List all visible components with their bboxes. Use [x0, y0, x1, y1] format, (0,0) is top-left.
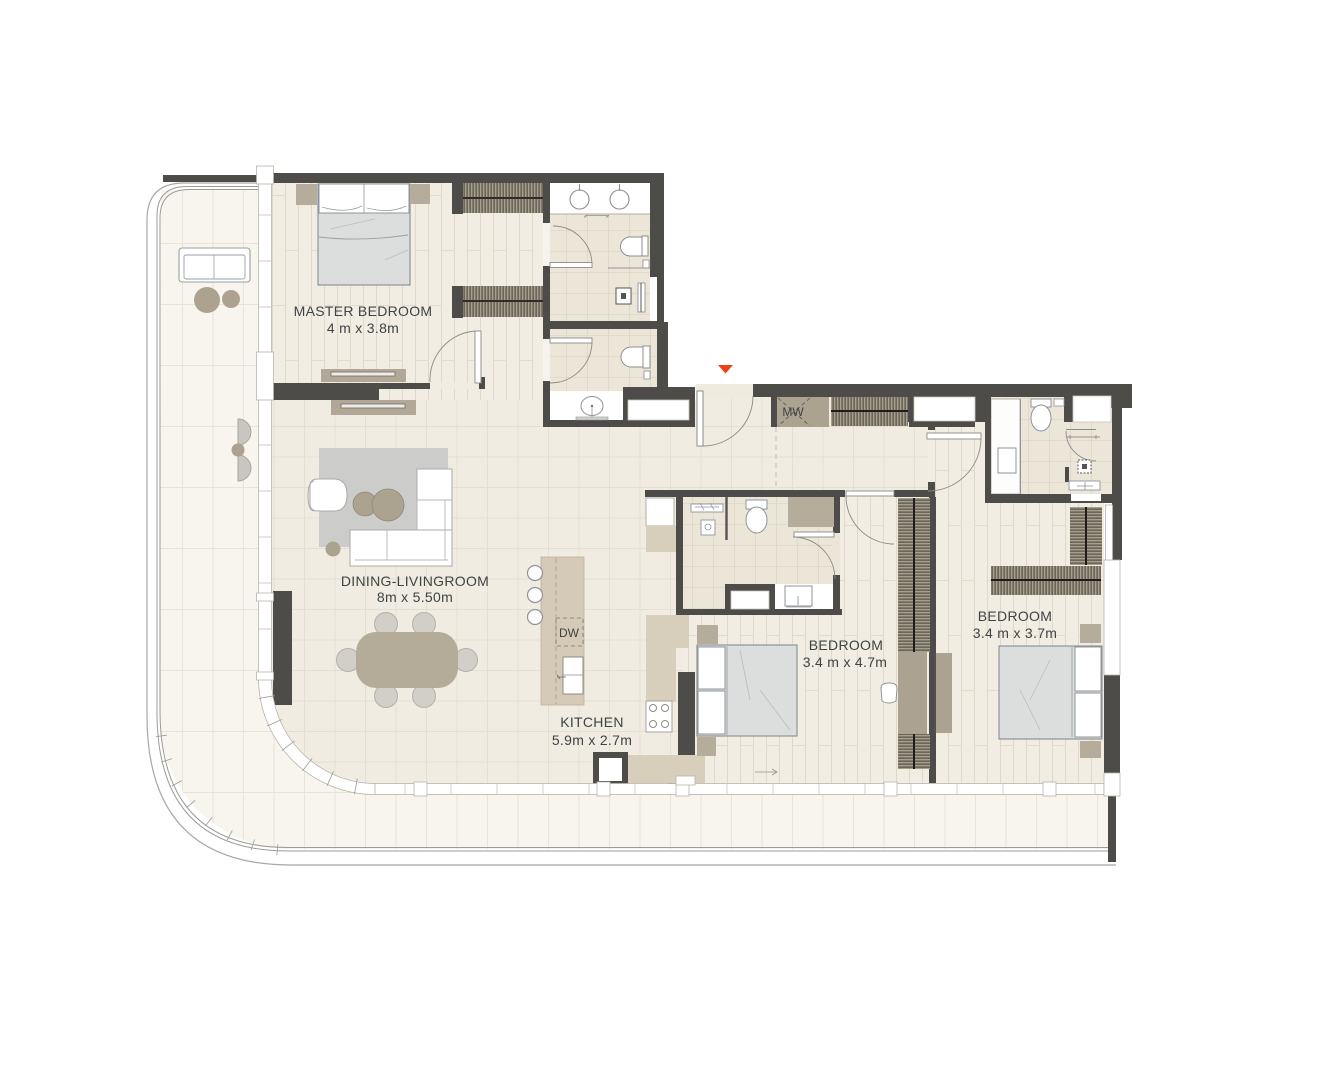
svg-text:BEDROOM: BEDROOM [978, 608, 1052, 624]
svg-text:MW: MW [782, 405, 804, 419]
svg-text:BEDROOM: BEDROOM [809, 637, 883, 653]
svg-text:4 m x 3.8m: 4 m x 3.8m [327, 320, 399, 336]
svg-text:3.4 m x 4.7m: 3.4 m x 4.7m [803, 654, 888, 670]
svg-text:3.4 m x 3.7m: 3.4 m x 3.7m [973, 625, 1058, 641]
svg-text:KITCHEN: KITCHEN [560, 714, 624, 730]
svg-text:MASTER BEDROOM: MASTER BEDROOM [294, 303, 433, 319]
svg-text:DINING-LIVINGROOM: DINING-LIVINGROOM [341, 573, 489, 589]
svg-text:5.9m x 2.7m: 5.9m x 2.7m [552, 732, 632, 748]
svg-text:DW: DW [559, 626, 580, 640]
svg-text:8m x 5.50m: 8m x 5.50m [377, 589, 453, 605]
